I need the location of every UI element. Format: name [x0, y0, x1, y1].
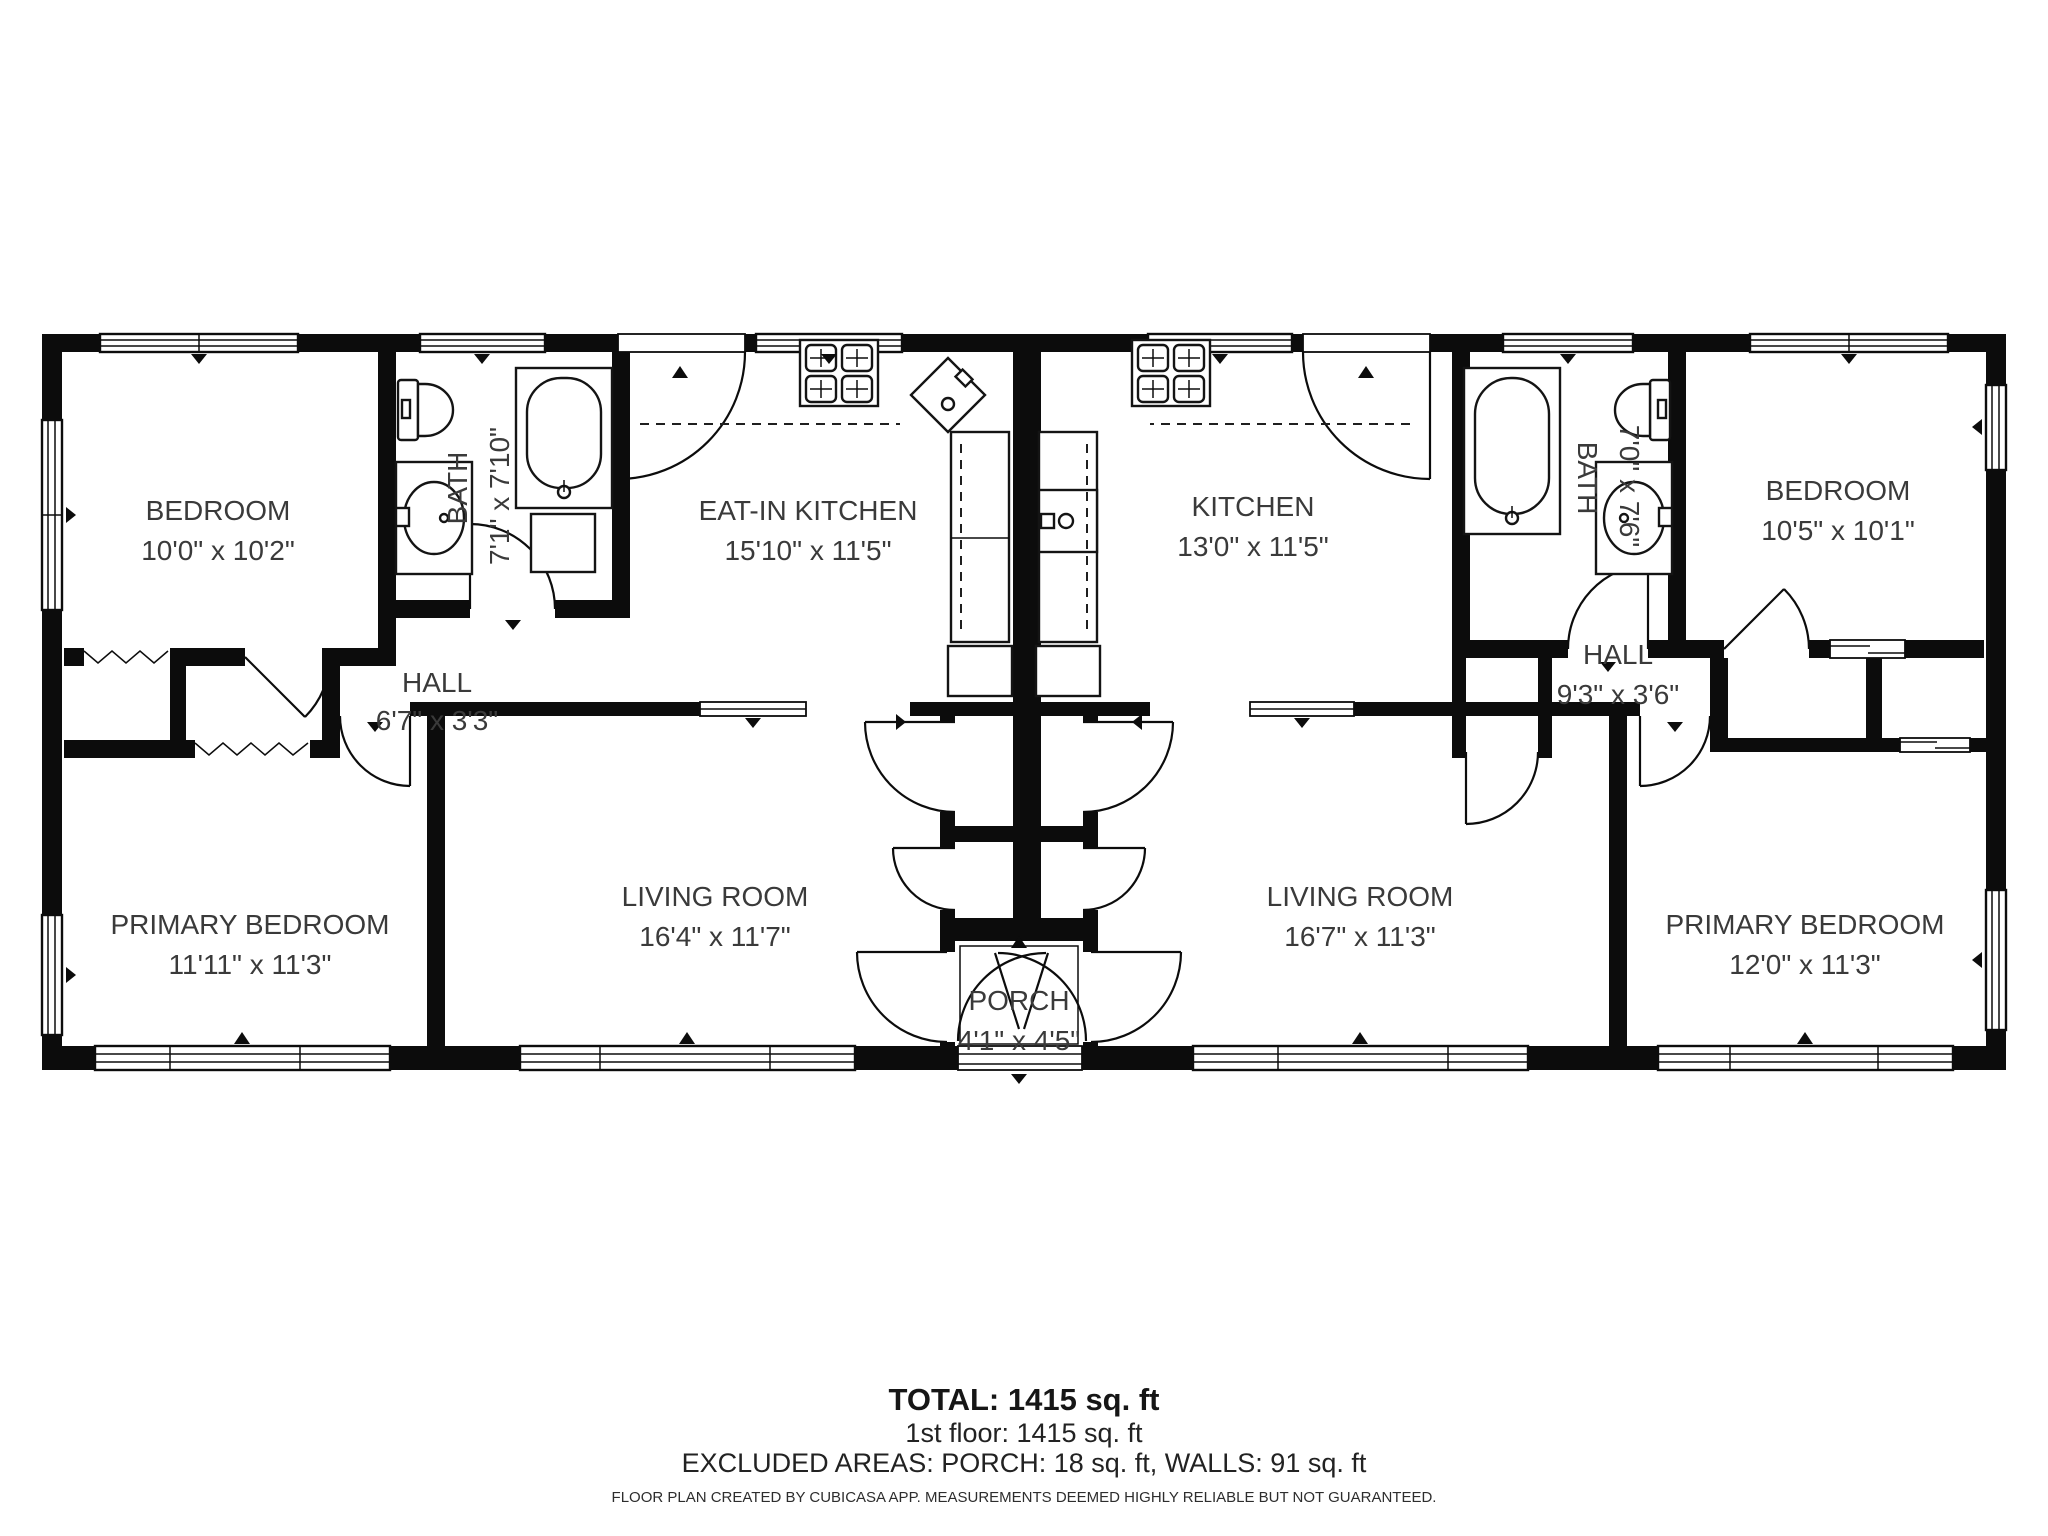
porch-door-to-right-living — [1091, 952, 1181, 1042]
bath-door-right — [1568, 564, 1648, 649]
room-dims-bedroom-left: 10'0" x 10'2" — [141, 535, 295, 566]
room-label-eat-in-kitchen: EAT-IN KITCHEN — [699, 495, 918, 526]
window — [1193, 1046, 1528, 1070]
room-label-primary-bedroom-right: PRIMARY BEDROOM — [1665, 909, 1944, 940]
window — [42, 915, 62, 1035]
window — [420, 334, 545, 352]
room-label-living-room-right: LIVING ROOM — [1267, 881, 1454, 912]
vestibule-door-left-upper — [865, 722, 955, 812]
window — [95, 1046, 390, 1070]
room-label-hall-left: HALL — [402, 667, 472, 698]
stove-icon — [800, 340, 878, 406]
total-area-text: TOTAL: 1415 sq. ft — [888, 1382, 1159, 1417]
window — [1986, 890, 2006, 1030]
window — [1986, 385, 2006, 470]
room-label-bedroom-right: BEDROOM — [1766, 475, 1911, 506]
room-dims-porch: 4'1" x 4'5" — [958, 1025, 1080, 1056]
bedroom-door-left — [245, 657, 330, 717]
room-label-primary-bedroom-left: PRIMARY BEDROOM — [110, 909, 389, 940]
room-dims-primary-bedroom-left: 11'11" x 11'3" — [169, 949, 332, 980]
bathtub-icon — [1464, 368, 1560, 534]
closet-rods — [84, 651, 308, 755]
room-label-bath-left: BATH — [442, 452, 473, 525]
cabinet-icon — [531, 514, 595, 572]
window — [520, 1046, 855, 1070]
toilet-icon — [398, 380, 453, 440]
room-label-bedroom-left: BEDROOM — [146, 495, 291, 526]
room-dims-bath-left: 7'1" x 7'10" — [484, 427, 515, 565]
vestibule-door-right-lower — [1083, 848, 1145, 910]
room-label-porch: PORCH — [968, 985, 1069, 1016]
fridge-icon-right — [1036, 646, 1100, 696]
window — [42, 420, 62, 610]
room-label-hall-right: HALL — [1583, 639, 1653, 670]
zigzag-closet — [195, 743, 308, 755]
window — [1750, 334, 1948, 352]
room-dims-living-room-right: 16'7" x 11'3" — [1284, 921, 1435, 952]
window — [1503, 334, 1633, 352]
room-dims-living-room-left: 16'4" x 11'7" — [639, 921, 790, 952]
room-label-kitchen-right: KITCHEN — [1192, 491, 1315, 522]
linen-closet-door-right — [1466, 752, 1538, 824]
room-dims-bath-right: 7'0" x 7'6" — [1614, 425, 1645, 547]
walls — [42, 334, 2006, 1070]
porch-door-to-left-living — [857, 952, 947, 1042]
vestibule-door-left-lower — [893, 848, 955, 910]
room-dims-eat-in-kitchen: 15'10" x 11'5" — [724, 535, 891, 566]
corner-sink-icon — [911, 358, 985, 432]
footer: TOTAL: 1415 sq. ft 1st floor: 1415 sq. f… — [612, 1382, 1437, 1506]
cased-opening-left — [700, 702, 806, 716]
room-label-living-room-left: LIVING ROOM — [622, 881, 809, 912]
window — [1658, 1046, 1953, 1070]
room-label-bath-right: BATH — [1572, 442, 1603, 515]
bathtub-icon — [516, 368, 612, 508]
cased-opening-right — [1250, 702, 1354, 716]
closet-slider-bottom — [1900, 738, 1970, 752]
window — [100, 334, 298, 352]
stove-icon — [1132, 340, 1210, 406]
room-dims-hall-left: 6'7" x 3'3" — [376, 705, 498, 736]
vestibule-door-right-upper — [1083, 722, 1173, 812]
counter-left — [951, 432, 1009, 642]
first-floor-area-text: 1st floor: 1415 sq. ft — [905, 1418, 1143, 1448]
floor-plan-canvas: BEDROOM 10'0" x 10'2" BATH 7'1" x 7'10" … — [0, 0, 2048, 1536]
kitchen-sink-icon — [1039, 490, 1097, 552]
fridge-icon-left — [948, 646, 1012, 696]
excluded-areas-text: EXCLUDED AREAS: PORCH: 18 sq. ft, WALLS:… — [682, 1448, 1367, 1478]
back-door-opening-left — [618, 334, 745, 352]
room-dims-primary-bedroom-right: 12'0" x 11'3" — [1729, 949, 1880, 980]
room-dims-hall-right: 9'3" x 3'6" — [1557, 679, 1679, 710]
back-door-opening-right — [1303, 334, 1430, 352]
room-dims-bedroom-right: 10'5" x 10'1" — [1761, 515, 1915, 546]
zigzag-closet — [84, 651, 168, 663]
bedroom-door-right — [1724, 589, 1809, 649]
disclaimer-text: FLOOR PLAN CREATED BY CUBICASA APP. MEAS… — [612, 1489, 1437, 1506]
closet-slider-top — [1830, 640, 1905, 658]
floor-plan-page: BEDROOM 10'0" x 10'2" BATH 7'1" x 7'10" … — [0, 0, 2048, 1536]
room-dims-kitchen-right: 13'0" x 11'5" — [1177, 531, 1328, 562]
